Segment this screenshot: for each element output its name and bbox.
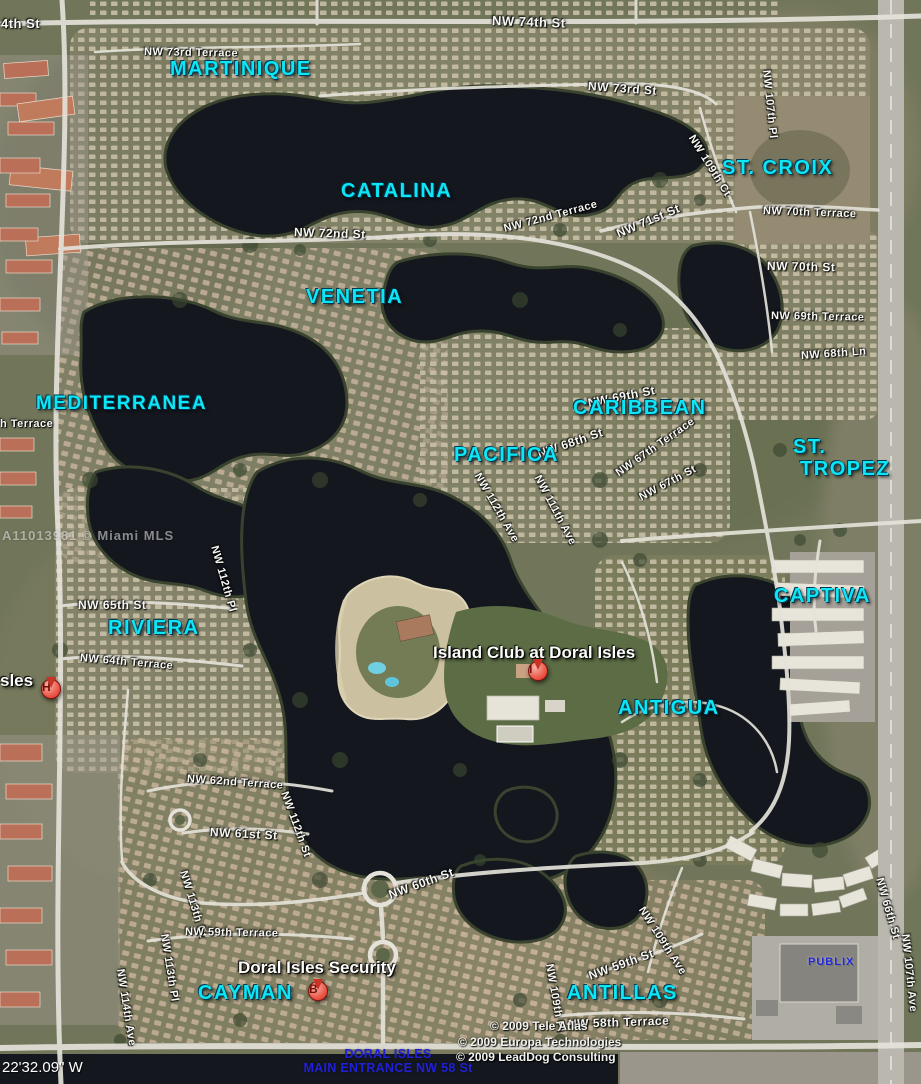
street-label-terrace-partial: h Terrace — [0, 418, 53, 430]
pin-tail — [533, 659, 543, 670]
street-label-nw-74th-st: NW 74th St — [492, 13, 566, 31]
mls-watermark: A11013981 © Miami MLS — [2, 528, 174, 543]
neighborhood-label-captiva: CAPTIVA — [774, 585, 871, 607]
street-label-nw-72nd-terrace: NW 72nd Terrace — [502, 198, 598, 235]
neighborhood-label-cayman: CAYMAN — [198, 982, 293, 1004]
street-label-nw-112th-ave: NW 112th Ave — [472, 471, 521, 544]
longitude-label: 22'32.09" W — [2, 1059, 83, 1076]
street-label-nw-72nd-st: NW 72nd St — [294, 225, 366, 241]
place-label-doral-isles-security: Doral Isles Security — [238, 958, 396, 978]
place-label-publix: PUBLIX — [808, 956, 854, 968]
street-label-nw-107th-ave: NW 107th Ave — [899, 933, 919, 1012]
neighborhood-label-mediterranea: MEDITERRANEA — [36, 394, 207, 415]
street-label-nw-70th-terrace: NW 70th Terrace — [763, 205, 857, 220]
street-label-nw-59th-st: NW 59th St — [587, 946, 656, 983]
entrance-line-2: MAIN ENTRANCE NW 58 St — [303, 1061, 472, 1075]
street-label-nw-64th-terrace: NW 64th Terrace — [79, 652, 173, 672]
street-label-nw-109th-ave: NW 109th Ave — [636, 905, 689, 977]
map-pin-i[interactable]: I — [527, 661, 549, 694]
neighborhood-label-antillas: ANTILLAS — [567, 982, 678, 1004]
street-label-nw-71st-st: NW 71st St — [614, 201, 682, 240]
street-label-nw-113th-pl: NW 113th Pl — [158, 933, 181, 1003]
neighborhood-label-st-tropez: ST. TROPEZ — [793, 436, 890, 480]
neighborhood-label-caribbean: CARIBBEAN — [573, 397, 707, 419]
street-label-nw-59th-terrace: NW 59th Terrace — [185, 926, 279, 940]
street-label-nw-61st-st: NW 61st St — [210, 825, 278, 843]
street-label-nw-74th-st-partial: 4th St — [1, 16, 40, 31]
street-label-nw-112th-pl: NW 112th Pl — [208, 544, 238, 613]
pin-tail — [46, 677, 56, 688]
satellite-map[interactable]: A11013981 © Miami MLS 22'32.09" W DORAL … — [0, 0, 921, 1084]
main-entrance-label: DORAL ISLES MAIN ENTRANCE NW 58 St — [303, 1047, 472, 1076]
map-pin-h[interactable]: H — [40, 679, 62, 712]
street-label-nw-60th-st: NW 60th St — [387, 865, 456, 902]
place-label-doral-isles-partial: sles — [0, 671, 33, 691]
copyright-line-3: © 2009 LeadDog Consulting — [456, 1050, 616, 1064]
entrance-line-1: DORAL ISLES — [303, 1047, 472, 1061]
neighborhood-label-riviera: RIVIERA — [108, 617, 200, 639]
street-label-nw-112th-st: NW 112th St — [278, 790, 313, 859]
neighborhood-label-venetia: VENETIA — [306, 286, 403, 308]
street-label-nw-66th-st: NW 66th St — [873, 876, 902, 940]
street-label-nw-69th-terrace: NW 69th Terrace — [771, 310, 865, 324]
map-pin-b[interactable]: B — [307, 981, 329, 1014]
copyright-line-2: © 2009 Europa Technologies — [458, 1035, 621, 1049]
street-label-nw-73rd-st: NW 73rd St — [588, 79, 658, 98]
neighborhood-label-catalina: CATALINA — [341, 180, 452, 202]
street-label-nw-67th-st: NW 67th St — [637, 463, 698, 503]
street-label-nw-62nd-terrace: NW 62nd Terrace — [187, 773, 284, 792]
copyright-line-1: © 2009 Tele Atlas — [490, 1019, 588, 1033]
neighborhood-label-st-croix: ST. CROIX — [722, 157, 833, 179]
pin-tail — [313, 979, 323, 990]
street-label-nw-107th-pl: NW 107th Pl — [760, 69, 779, 139]
neighborhood-label-antigua: ANTIGUA — [618, 697, 720, 719]
street-label-nw-68th-ln: NW 68th Ln — [801, 345, 867, 362]
neighborhood-label-martinique: MARTINIQUE — [170, 58, 312, 80]
map-label-overlay: A11013981 © Miami MLS 22'32.09" W DORAL … — [0, 0, 921, 1084]
street-label-nw-65th-st: NW 65th St — [78, 598, 146, 612]
street-label-nw-111th-ave: NW 111th Ave — [532, 473, 579, 547]
neighborhood-label-pacifica: PACIFICA — [454, 444, 559, 466]
street-label-nw-114th-ave: NW 114th Ave — [114, 968, 138, 1047]
street-label-nw-70th-st: NW 70th St — [767, 259, 836, 274]
